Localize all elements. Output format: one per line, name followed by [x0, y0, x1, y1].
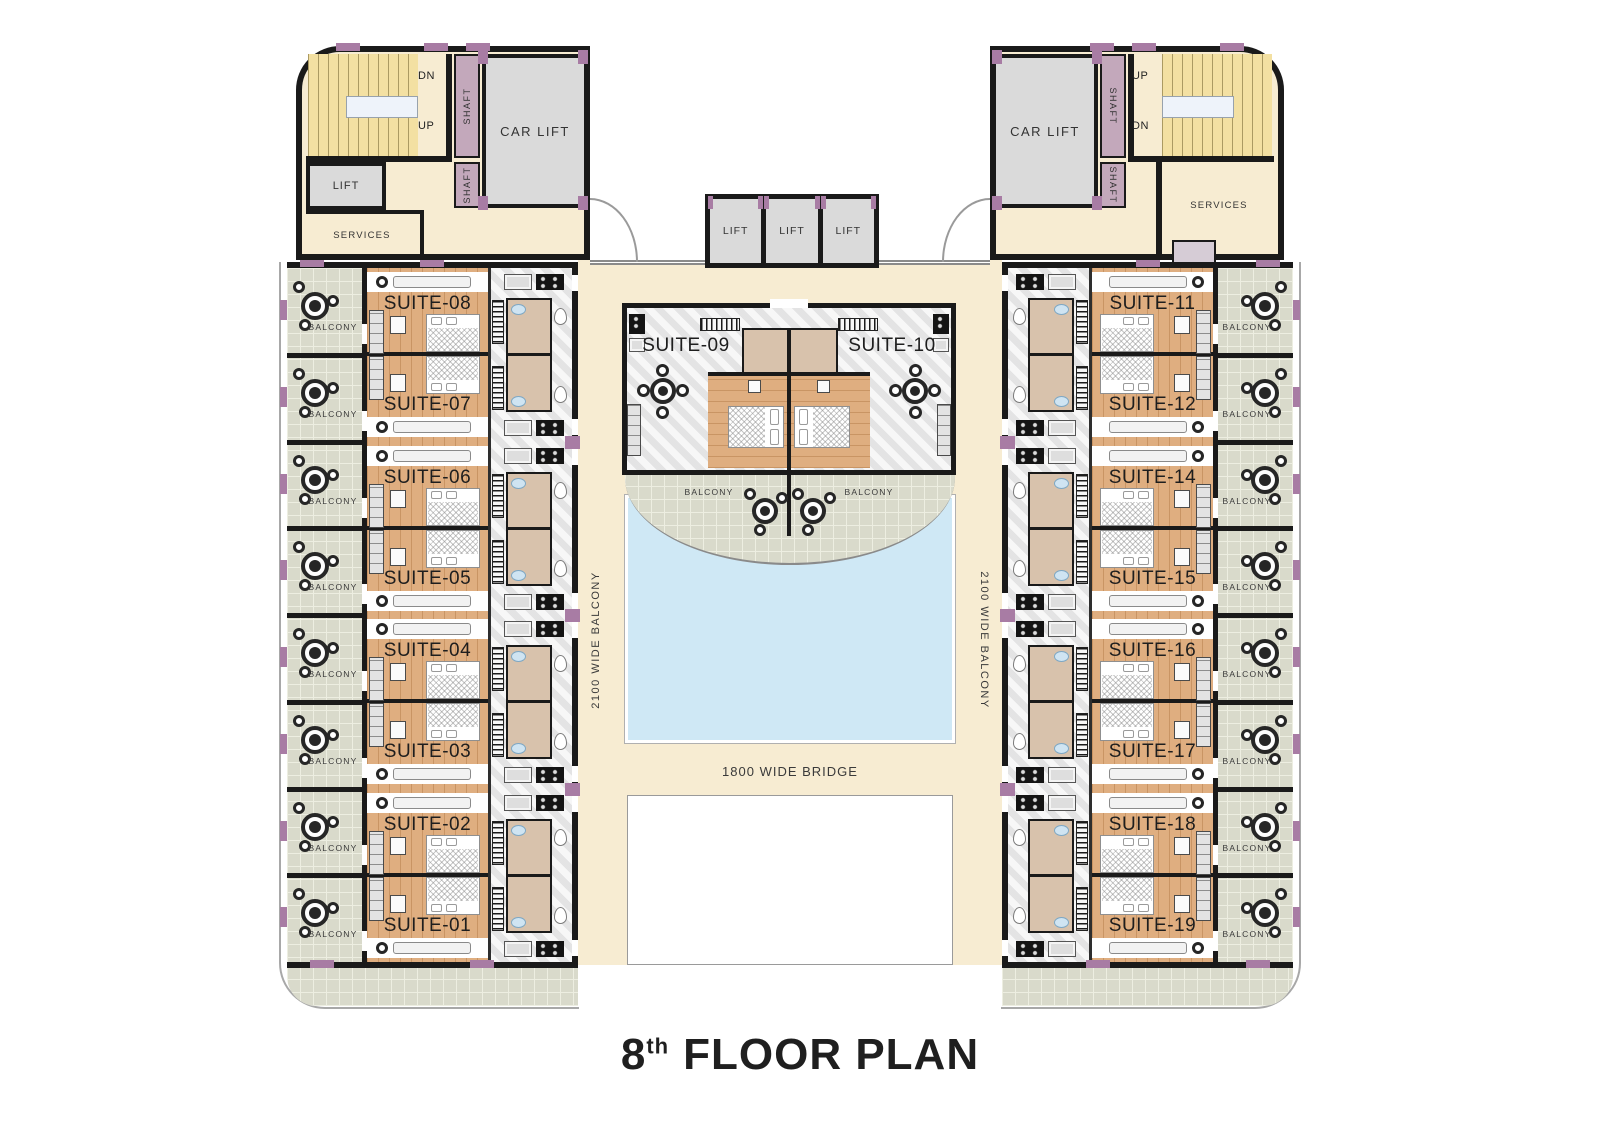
- right-wing-balcony-chair-icon: [1275, 802, 1287, 814]
- right-block-services-vestibule: [1172, 240, 1216, 264]
- right-wing-kitchenette-sink: [1048, 594, 1076, 610]
- left-wing-suite-door-gap: [572, 622, 578, 638]
- right-wing-stool-icon: [1192, 942, 1204, 954]
- left-wing-console-desk: [393, 942, 471, 954]
- left-wing-pillow: [431, 904, 442, 912]
- right-wing-side-table: [1174, 663, 1190, 681]
- right-wing-console-desk: [1109, 276, 1187, 288]
- center-balcony-chair-icon: [754, 524, 766, 536]
- left-wing-kitchenette-stove: [536, 448, 564, 464]
- left-wing-balcony-table-icon: [301, 292, 329, 320]
- center-party-wall-stub: [787, 468, 791, 536]
- left-wing-kitchenette-stove: [536, 941, 564, 957]
- left-wing-toilet-icon: [554, 560, 567, 577]
- left-wing-kitchenette-sink: [504, 795, 532, 811]
- right-wing-wardrobe: [1076, 474, 1088, 518]
- left-wing-stool-icon: [376, 768, 388, 780]
- left-wing-balcony-chair-icon: [293, 281, 305, 293]
- right-wing-suite-label: SUITE-16: [1092, 641, 1213, 661]
- left-wing-washbasin-icon: [511, 570, 526, 581]
- left-wing-bed-cover: [428, 357, 478, 380]
- right-wing-pillow: [1123, 383, 1134, 391]
- left-wing-bathroom-divider: [506, 527, 552, 530]
- center-suite10-chair: [909, 364, 922, 377]
- left-wing-toilet-icon: [554, 482, 567, 499]
- left-wing-kitchenette-sink: [504, 621, 532, 637]
- center-balcony-chair-icon: [802, 524, 814, 536]
- right-wing-wardrobe: [1076, 821, 1088, 865]
- left-wing-balcony-chair-icon: [293, 368, 305, 380]
- right-wing-suite-label: SUITE-14: [1092, 468, 1213, 488]
- right-wing-balcony-table-icon: [1251, 899, 1279, 927]
- left-block-services-side-wall: [420, 210, 424, 258]
- right-block-stair-landing: [1162, 96, 1234, 118]
- left-wing-wardrobe: [492, 300, 504, 344]
- right-wing-pillow: [1123, 317, 1134, 325]
- center-suite10-stove: [933, 314, 949, 334]
- right-wing-suite-label: SUITE-12: [1092, 395, 1213, 415]
- right-wing-pillow: [1138, 730, 1149, 738]
- left-block-shaft-bottom-label: SHAFT: [461, 155, 473, 215]
- left-wing-stool-icon: [376, 797, 388, 809]
- right-wing-balcony-divider: [1215, 873, 1293, 878]
- right-wing-balcony-chair-icon: [1241, 295, 1253, 307]
- center-suite09-stove: [629, 314, 645, 334]
- left-wing-balcony-divider: [287, 700, 365, 705]
- right-wing-corridor-door-post: [1000, 783, 1015, 796]
- center-tv-unit: [817, 380, 830, 393]
- right-wing-toilet-icon: [1013, 308, 1026, 325]
- right-wing-bed-cover: [1102, 328, 1152, 351]
- left-wing-toilet-icon: [554, 386, 567, 403]
- center-suite-left-label: SUITE-09: [628, 336, 744, 356]
- right-wing-stool-icon: [1192, 595, 1204, 607]
- left-wing-side-table: [390, 895, 406, 913]
- left-wing-outer-wall-door-marker: [280, 387, 287, 407]
- left-wing-side-table: [390, 837, 406, 855]
- left-wing-suite-door-gap: [572, 419, 578, 435]
- left-wing-balcony-chair-icon: [327, 816, 339, 828]
- right-wing-bathroom-divider: [1028, 353, 1074, 356]
- right-wing-kitchenette-stove: [1016, 941, 1044, 957]
- right-wing-balcony-chair-icon: [1241, 902, 1253, 914]
- right-wing-washbasin-icon: [1054, 304, 1069, 315]
- left-wing-pillow: [446, 557, 457, 565]
- left-wing-outer-wall-door-marker: [280, 907, 287, 927]
- left-wing-wardrobe: [492, 366, 504, 410]
- left-wing-console-desk: [393, 797, 471, 809]
- left-block-stair-dn-label: DN: [418, 68, 448, 84]
- right-wing-suite-door-gap: [1002, 940, 1008, 956]
- right-wing-balcony-table-icon: [1251, 552, 1279, 580]
- left-wing-balcony-label: BALCONY: [302, 928, 364, 940]
- right-wing-pillow: [1138, 838, 1149, 846]
- left-wing-balcony-chair-icon: [293, 888, 305, 900]
- left-wing-sofa: [369, 877, 384, 921]
- right-wing-outer-wall-door-marker: [1293, 300, 1300, 320]
- right-wing-washbasin-icon: [1054, 396, 1069, 407]
- right-wing-washbasin-icon: [1054, 825, 1069, 836]
- right-wing-kitchenette-stove: [1016, 448, 1044, 464]
- left-wing-outer-wall-door-marker: [280, 300, 287, 320]
- right-wing-outer-wall-door-marker: [1293, 474, 1300, 494]
- right-wing-balcony-table-icon: [1251, 292, 1279, 320]
- right-wing-pillow: [1138, 664, 1149, 672]
- right-wing-balcony-chair-icon: [1275, 888, 1287, 900]
- right-wing-console-desk: [1109, 595, 1187, 607]
- right-wing-balcony-chair-icon: [1241, 469, 1253, 481]
- left-wing-pillow: [446, 730, 457, 738]
- right-wing-stool-icon: [1192, 797, 1204, 809]
- left-wing-suite-label: SUITE-05: [367, 569, 488, 589]
- right-wing-wardrobe: [1076, 366, 1088, 410]
- right-wing-balcony-divider: [1215, 787, 1293, 792]
- right-wing-balcony-chair-icon: [1275, 281, 1287, 293]
- center-suite10-wardrobe: [838, 318, 878, 331]
- left-wing-kitchenette-stove: [536, 795, 564, 811]
- left-wing-bottom-wall-door-marker: [310, 960, 334, 968]
- left-wing-pillow: [431, 664, 442, 672]
- right-wing-bed-cover: [1102, 357, 1152, 380]
- left-block-car-lift-corner-marker: [578, 50, 588, 64]
- right-wing-bed-cover: [1102, 502, 1152, 525]
- right-wing-pillow: [1123, 730, 1134, 738]
- left-wing-top-wall-door-marker: [300, 259, 324, 267]
- right-wing-balcony-label: BALCONY: [1216, 408, 1278, 420]
- right-wing-kitchenette-sink: [1048, 621, 1076, 637]
- right-wing-console-desk: [1109, 421, 1187, 433]
- center-bed-cover: [813, 407, 849, 447]
- right-wing-balcony-chair-icon: [1241, 816, 1253, 828]
- left-wing-side-table: [390, 374, 406, 392]
- right-wing-kitchenette-stove: [1016, 795, 1044, 811]
- right-wing-toilet-icon: [1013, 655, 1026, 672]
- title-text: FLOOR PLAN: [683, 1030, 979, 1079]
- center-bathroom-divider: [787, 328, 791, 375]
- left-block-stair-up-label: UP: [418, 118, 448, 134]
- right-wing-kitchenette-stove: [1016, 621, 1044, 637]
- left-wing-balcony-divider: [287, 787, 365, 792]
- right-wing-balcony-label: BALCONY: [1216, 668, 1278, 680]
- right-block-car-lift-corner-marker: [992, 196, 1002, 210]
- left-wing-bathroom-divider: [506, 700, 552, 703]
- right-wing-side-table: [1174, 837, 1190, 855]
- right-wing-suite-label: SUITE-18: [1092, 815, 1213, 835]
- right-wing-kitchenette-stove: [1016, 420, 1044, 436]
- left-wing-balcony-label: BALCONY: [302, 495, 364, 507]
- left-wing-washbasin-icon: [511, 743, 526, 754]
- left-wing-console-desk: [393, 421, 471, 433]
- right-wing-bathroom-divider: [1028, 527, 1074, 530]
- right-block-top-wall-door-marker: [1132, 43, 1156, 51]
- right-wing-suite-door-gap: [1002, 766, 1008, 782]
- left-wing-pillow: [431, 730, 442, 738]
- left-wing-wardrobe: [492, 474, 504, 518]
- right-block-shaft-bottom-label: SHAFT: [1107, 155, 1119, 215]
- left-wing-suite-door-gap: [572, 593, 578, 609]
- right-wing-balcony-table-icon: [1251, 639, 1279, 667]
- left-wing-pillow: [431, 491, 442, 499]
- lift-room-center-2: LIFT: [766, 199, 817, 263]
- center-suite09-wardrobe: [700, 318, 740, 331]
- right-wing-suite-door-gap: [1002, 622, 1008, 638]
- left-block-lift-label: LIFT: [306, 162, 386, 210]
- left-wing-console-desk: [393, 623, 471, 635]
- center-balcony-table-icon: [752, 498, 778, 524]
- left-wing-pillow: [431, 383, 442, 391]
- left-wing-balcony-chair-icon: [293, 455, 305, 467]
- left-wing-suite-door-gap: [572, 766, 578, 782]
- left-wing-kitchenette-stove: [536, 621, 564, 637]
- left-wing-washbasin-icon: [511, 396, 526, 407]
- left-wing-corridor-door-post: [565, 609, 580, 622]
- center-balcony-chair-icon: [792, 488, 804, 500]
- left-wing-bed-cover: [428, 704, 478, 727]
- right-wing-bottom-wall-door-marker: [1086, 960, 1110, 968]
- right-balcony-corridor-label: 2100 WIDE BALCONY: [976, 560, 992, 720]
- right-wing-washbasin-icon: [1054, 743, 1069, 754]
- left-wing-kitchenette-stove: [536, 767, 564, 783]
- left-block-top-wall-door-marker: [336, 43, 360, 51]
- courtyard-opening: [627, 795, 953, 965]
- left-wing-stool-icon: [376, 942, 388, 954]
- left-wing-balcony-chair-icon: [293, 802, 305, 814]
- left-wing-wardrobe: [492, 647, 504, 691]
- left-wing-console-desk: [393, 595, 471, 607]
- left-block-shaft-top-label: SHAFT: [461, 76, 473, 136]
- right-wing-toilet-icon: [1013, 829, 1026, 846]
- right-wing-wardrobe: [1076, 647, 1088, 691]
- left-wing-side-table: [390, 663, 406, 681]
- left-wing-balcony-table-icon: [301, 552, 329, 580]
- right-wing-pillow: [1138, 317, 1149, 325]
- right-wing-pillow: [1123, 664, 1134, 672]
- right-wing-top-wall-door-marker: [1136, 259, 1160, 267]
- right-wing-bed-cover: [1102, 675, 1152, 698]
- right-wing-stool-icon: [1192, 421, 1204, 433]
- left-wing-balcony-chair-icon: [293, 541, 305, 553]
- center-balcony-table-icon: [800, 498, 826, 524]
- right-wing-bottom-terrace-floor: [1002, 966, 1293, 1006]
- right-wing-console-desk: [1109, 450, 1187, 462]
- left-wing-suite-door-gap: [572, 449, 578, 465]
- right-wing-sofa: [1196, 530, 1211, 574]
- right-wing-balcony-chair-icon: [1275, 715, 1287, 727]
- right-wing-bottom-wall-door-marker: [1246, 960, 1270, 968]
- center-balcony-chair-icon: [776, 492, 788, 504]
- right-wing-balcony-chair-icon: [1241, 729, 1253, 741]
- right-wing-balcony-divider: [1215, 700, 1293, 705]
- right-wing-outer-wall-door-marker: [1293, 560, 1300, 580]
- left-wing-balcony-table-icon: [301, 813, 329, 841]
- right-block-stair-dn-label: DN: [1132, 118, 1162, 134]
- right-wing-sofa: [1196, 484, 1211, 528]
- left-wing-sofa: [369, 657, 384, 701]
- center-pillow: [770, 429, 779, 445]
- right-wing-pillow: [1123, 491, 1134, 499]
- right-wing-bed-cover: [1102, 878, 1152, 901]
- left-wing-side-table: [390, 721, 406, 739]
- left-wing-balcony-chair-icon: [327, 902, 339, 914]
- left-wing-balcony-divider: [287, 613, 365, 618]
- right-wing-bathroom-divider: [1028, 700, 1074, 703]
- right-wing-outer-wall-door-marker: [1293, 647, 1300, 667]
- center-suite09-sofa: [627, 404, 641, 456]
- left-wing-corridor-door-post: [565, 436, 580, 449]
- right-wing-balcony-label: BALCONY: [1216, 495, 1278, 507]
- right-wing-side-table: [1174, 374, 1190, 392]
- left-block-top-wall-door-marker: [466, 43, 490, 51]
- right-wing-suite-label: SUITE-11: [1092, 294, 1213, 314]
- center-suite09-dining-table: [650, 378, 676, 404]
- left-wing-balcony-chair-icon: [327, 382, 339, 394]
- right-block-car-lift-label: CAR LIFT: [992, 54, 1098, 208]
- right-wing-washbasin-icon: [1054, 651, 1069, 662]
- title-ordinal-suffix: th: [646, 1033, 669, 1058]
- title-floor-number: 8: [621, 1030, 646, 1079]
- left-wing-wardrobe: [492, 713, 504, 757]
- right-wing-balcony-label: BALCONY: [1216, 928, 1278, 940]
- right-wing-suite-door-gap: [1002, 593, 1008, 609]
- left-wing-toilet-icon: [554, 907, 567, 924]
- right-wing-toilet-icon: [1013, 907, 1026, 924]
- left-wing-suite-label: SUITE-02: [367, 815, 488, 835]
- left-wing-washbasin-icon: [511, 478, 526, 489]
- left-wing-stool-icon: [376, 276, 388, 288]
- right-wing-pillow: [1138, 491, 1149, 499]
- right-wing-pillow: [1123, 904, 1134, 912]
- right-wing-balcony-chair-icon: [1241, 555, 1253, 567]
- left-wing-suite-label: SUITE-08: [367, 294, 488, 314]
- left-wing-balcony-chair-icon: [327, 729, 339, 741]
- lift-room-center-3: LIFT: [823, 199, 874, 263]
- right-wing-side-table: [1174, 721, 1190, 739]
- left-wing-balcony-chair-icon: [293, 628, 305, 640]
- left-wing-kitchenette-stove: [536, 594, 564, 610]
- right-wing-kitchenette-sink: [1048, 448, 1076, 464]
- left-wing-outer-wall-door-marker: [280, 734, 287, 754]
- left-wing-stool-icon: [376, 450, 388, 462]
- left-wing-toilet-icon: [554, 733, 567, 750]
- right-wing-kitchenette-stove: [1016, 274, 1044, 290]
- left-wing-side-table: [390, 490, 406, 508]
- right-block-top-wall-door-marker: [1090, 43, 1114, 51]
- left-wing-balcony-chair-icon: [327, 642, 339, 654]
- right-wing-corridor-door-post: [1000, 609, 1015, 622]
- right-wing-console-desk: [1109, 623, 1187, 635]
- right-wing-sofa: [1196, 703, 1211, 747]
- right-wing-balcony-chair-icon: [1275, 541, 1287, 553]
- right-wing-console-desk: [1109, 768, 1187, 780]
- left-wing-kitchenette-sink: [504, 594, 532, 610]
- right-wing-balcony-divider: [1215, 440, 1293, 445]
- left-wing-balcony-table-icon: [301, 379, 329, 407]
- right-wing-bed-cover: [1102, 531, 1152, 554]
- left-wing-kitchenette-sink: [504, 448, 532, 464]
- left-wing-washbasin-icon: [511, 917, 526, 928]
- right-wing-sofa: [1196, 310, 1211, 354]
- right-block-services-label: SERVICES: [1162, 160, 1276, 250]
- right-wing-pillow: [1138, 904, 1149, 912]
- center-pillow: [799, 429, 808, 445]
- left-wing-balcony-label: BALCONY: [302, 668, 364, 680]
- right-block-stair-up-label: UP: [1132, 68, 1162, 84]
- left-wing-balcony-chair-icon: [293, 715, 305, 727]
- left-wing-balcony-chair-icon: [327, 295, 339, 307]
- center-balcony-left-label: BALCONY: [664, 486, 754, 498]
- left-wing-balcony-label: BALCONY: [302, 408, 364, 420]
- right-wing-washbasin-icon: [1054, 917, 1069, 928]
- right-wing-balcony-label: BALCONY: [1216, 755, 1278, 767]
- center-suite10-dining-table: [902, 378, 928, 404]
- left-wing-console-desk: [393, 768, 471, 780]
- left-wing-balcony-chair-icon: [327, 469, 339, 481]
- left-wing-outer-wall-door-marker: [280, 560, 287, 580]
- left-wing-washbasin-icon: [511, 651, 526, 662]
- left-wing-sofa: [369, 310, 384, 354]
- left-wing-bottom-wall-door-marker: [470, 960, 494, 968]
- left-wing-side-table: [390, 316, 406, 334]
- left-wing-pillow: [446, 317, 457, 325]
- left-wing-pillow: [446, 904, 457, 912]
- left-wing-bathroom-divider: [506, 353, 552, 356]
- right-block-car-lift-corner-marker: [992, 50, 1002, 64]
- right-wing-sofa: [1196, 356, 1211, 400]
- left-wing-outer-wall-door-marker: [280, 821, 287, 841]
- left-wing-balcony-label: BALCONY: [302, 581, 364, 593]
- left-wing-sofa: [369, 530, 384, 574]
- left-wing-sofa: [369, 484, 384, 528]
- left-wing-top-wall-door-marker: [420, 259, 444, 267]
- right-wing-washbasin-icon: [1054, 478, 1069, 489]
- right-wing-wardrobe: [1076, 713, 1088, 757]
- left-wing-suite-label: SUITE-01: [367, 916, 488, 936]
- right-wing-bath-wall: [1089, 268, 1092, 962]
- left-wing-pillow: [446, 664, 457, 672]
- floor-plan-canvas: LIFTLIFTLIFT 2100 WIDE BALCONY 2100 WIDE…: [0, 0, 1600, 1130]
- center-bedroom-party-wall: [787, 372, 791, 468]
- left-wing-sofa: [369, 831, 384, 875]
- left-wing-kitchenette-sink: [504, 420, 532, 436]
- right-wing-console-desk: [1109, 942, 1187, 954]
- left-wing-balcony-table-icon: [301, 726, 329, 754]
- left-wing-pillow: [446, 838, 457, 846]
- right-wing-balcony-divider: [1215, 613, 1293, 618]
- right-wing-wardrobe: [1076, 540, 1088, 584]
- right-wing-side-table: [1174, 895, 1190, 913]
- right-wing-pillow: [1138, 383, 1149, 391]
- left-wing-balcony-divider: [287, 440, 365, 445]
- left-block-car-lift-label: CAR LIFT: [482, 54, 588, 208]
- left-wing-sofa: [369, 356, 384, 400]
- left-wing-pillow: [446, 491, 457, 499]
- left-wing-suite-label: SUITE-03: [367, 742, 488, 762]
- right-wing-pillow: [1138, 557, 1149, 565]
- left-wing-wardrobe: [492, 821, 504, 865]
- left-block-car-lift-corner-marker: [478, 50, 488, 64]
- right-wing-balcony-label: BALCONY: [1216, 842, 1278, 854]
- left-wing-console-desk: [393, 450, 471, 462]
- right-wing-balcony-chair-icon: [1275, 455, 1287, 467]
- right-wing-sofa: [1196, 831, 1211, 875]
- left-wing-washbasin-icon: [511, 304, 526, 315]
- bridge-label: 1800 WIDE BRIDGE: [690, 762, 890, 780]
- right-wing-top-wall-door-marker: [1256, 259, 1280, 267]
- right-wing-wardrobe: [1076, 300, 1088, 344]
- left-wing-bed-cover: [428, 531, 478, 554]
- right-wing-toilet-icon: [1013, 386, 1026, 403]
- left-wing-wardrobe: [492, 887, 504, 931]
